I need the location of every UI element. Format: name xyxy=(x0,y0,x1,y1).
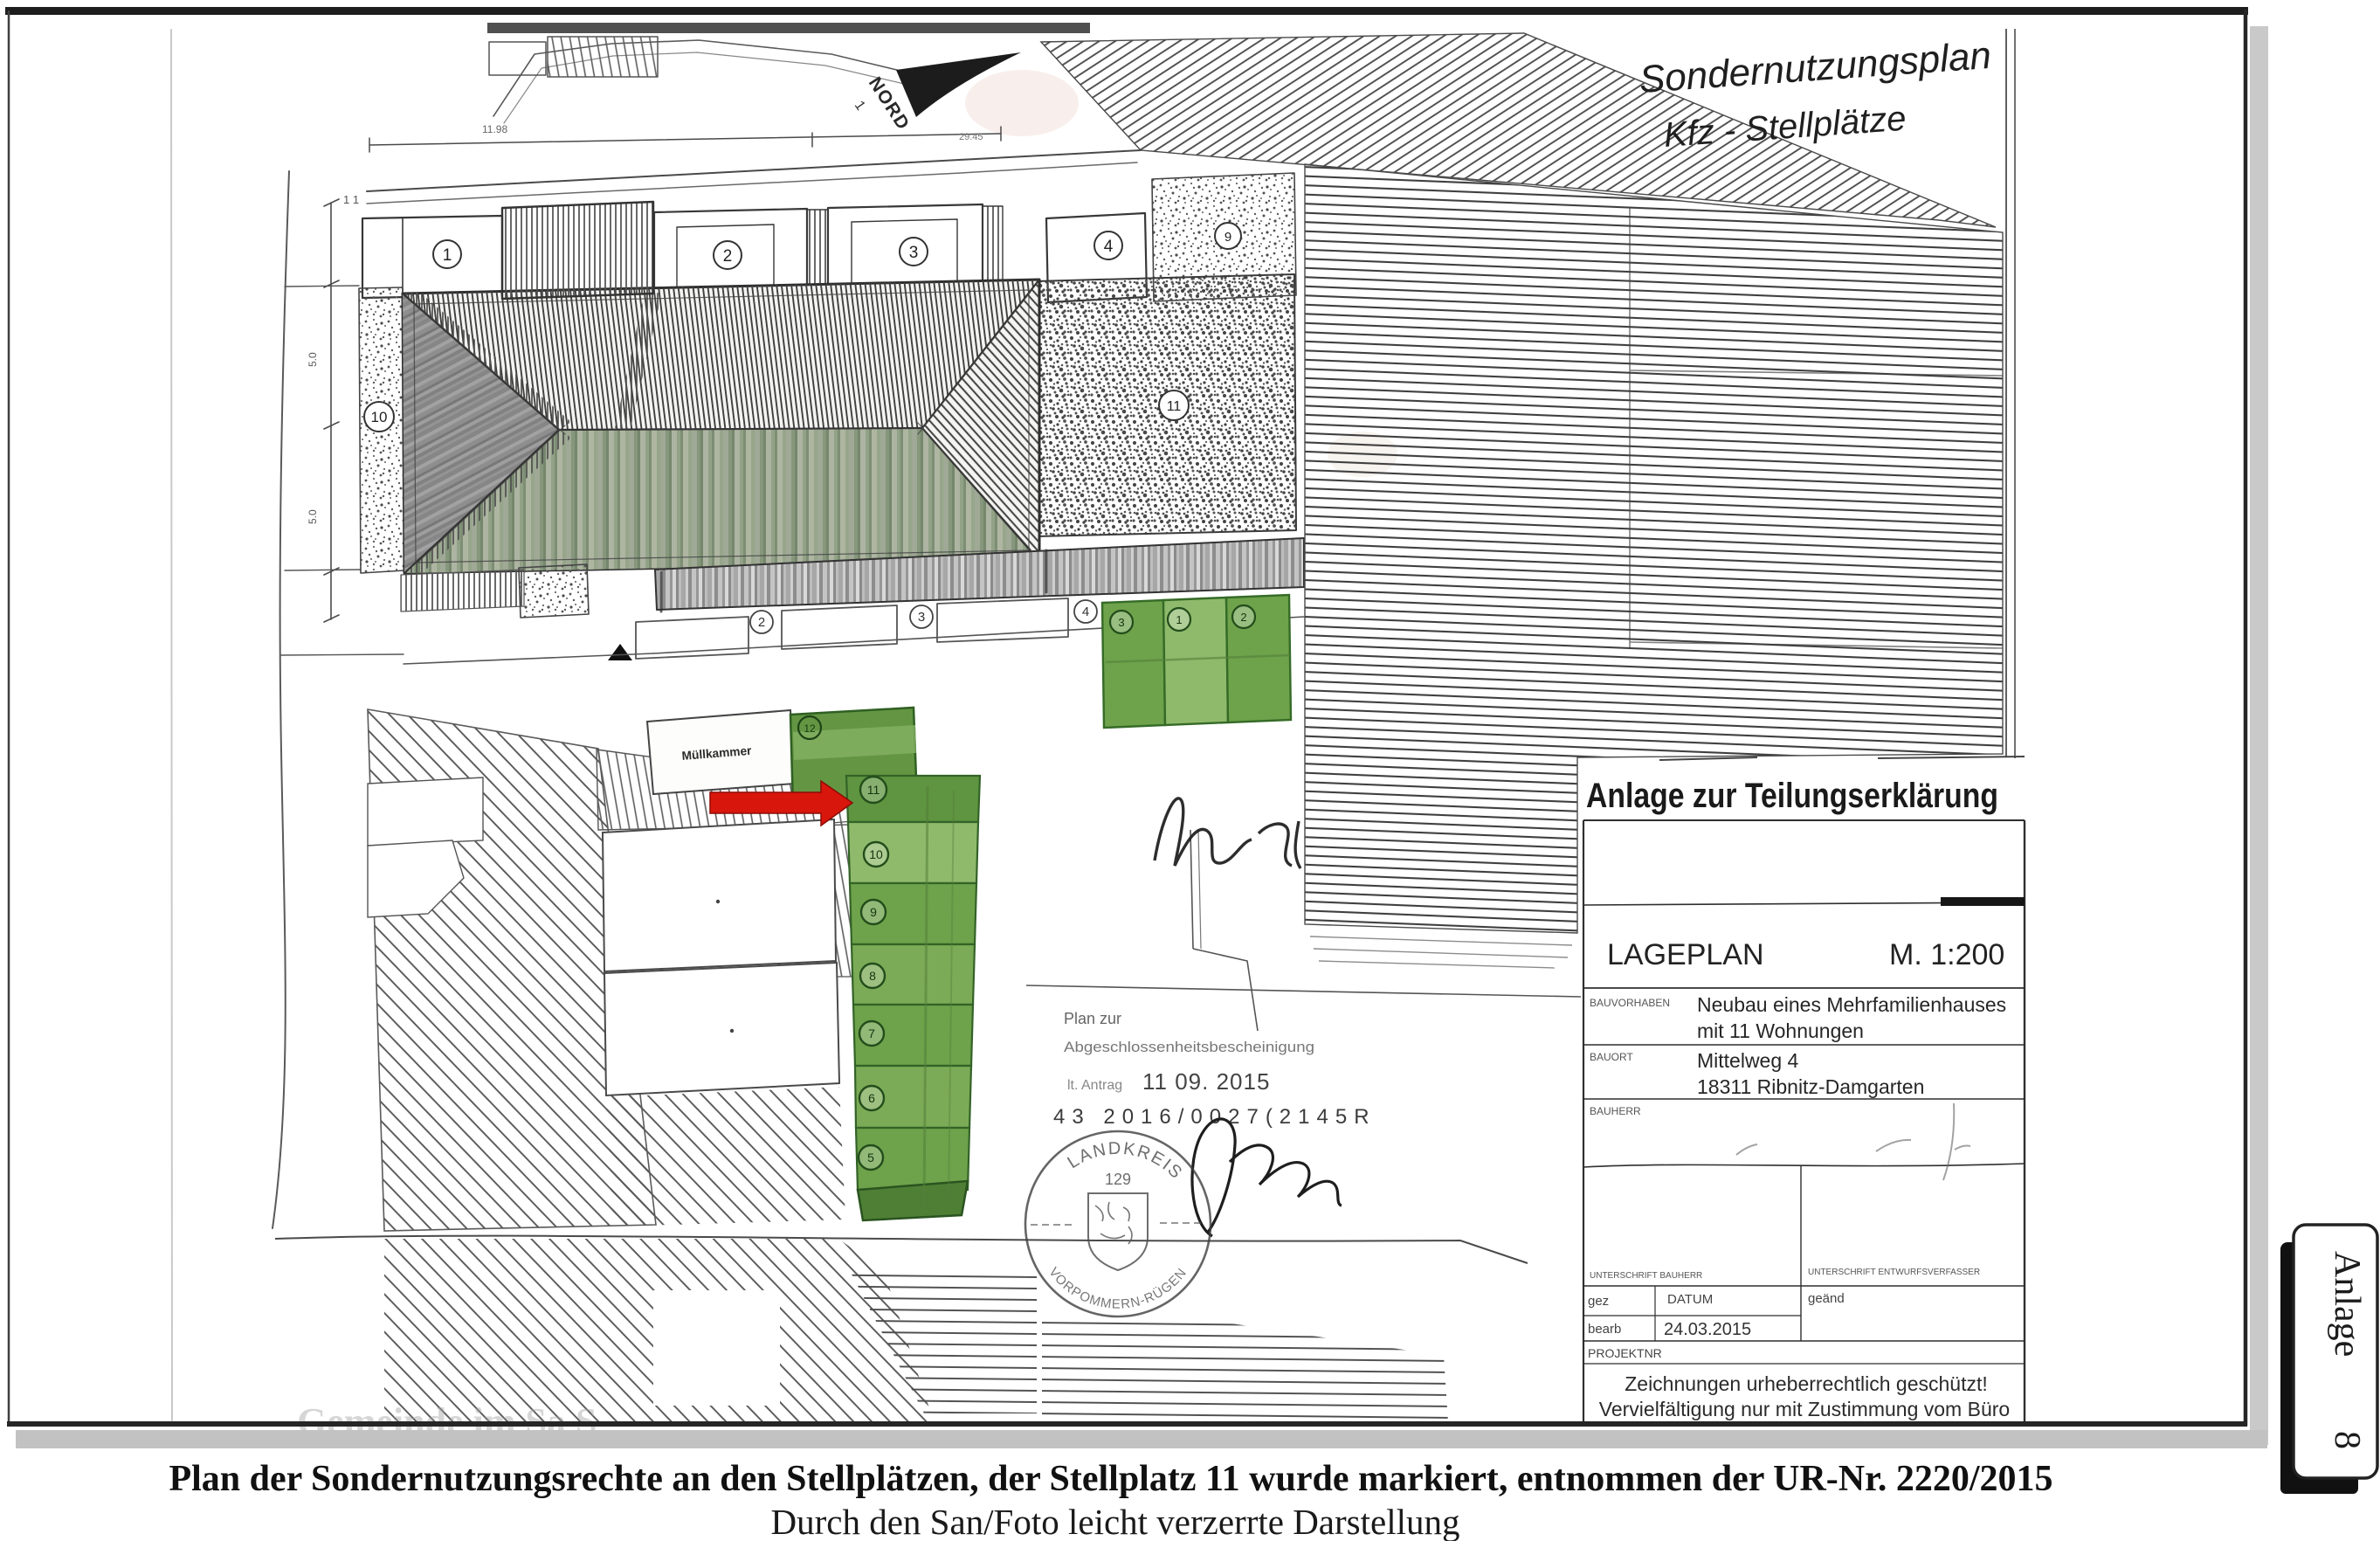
svg-text:1 1: 1 1 xyxy=(343,193,359,206)
svg-text:11: 11 xyxy=(867,783,880,797)
svg-text:29.45: 29.45 xyxy=(959,132,983,142)
svg-text:BAUHERR: BAUHERR xyxy=(1590,1105,1641,1117)
svg-text:M. 1:200: M. 1:200 xyxy=(1889,938,2004,971)
svg-text:8: 8 xyxy=(2327,1431,2367,1449)
svg-text:12: 12 xyxy=(804,722,816,735)
svg-text:10: 10 xyxy=(371,409,388,425)
svg-text:3: 3 xyxy=(909,244,919,262)
svg-text:11 09. 2015: 11 09. 2015 xyxy=(1142,1068,1270,1095)
svg-text:Plan zur: Plan zur xyxy=(1064,1010,1121,1027)
svg-text:Durch den San/Foto leicht verz: Durch den San/Foto leicht verzerrte Dars… xyxy=(771,1502,1460,1541)
svg-text:9: 9 xyxy=(870,905,877,919)
svg-text:8: 8 xyxy=(869,969,876,983)
svg-text:2: 2 xyxy=(758,615,765,630)
svg-text:Plan der Sondernutzungsrechte: Plan der Sondernutzungsrechte an den Ste… xyxy=(169,1459,2052,1499)
svg-text:geänd: geänd xyxy=(1808,1291,1845,1306)
svg-text:Vervielfältigung nur mit Zusti: Vervielfältigung nur mit Zustimmung vom … xyxy=(1599,1398,2010,1420)
svg-text:6: 6 xyxy=(868,1091,875,1105)
svg-text:gez: gez xyxy=(1588,1294,1609,1309)
svg-text:11.98: 11.98 xyxy=(482,123,507,135)
svg-text:1: 1 xyxy=(1176,613,1182,626)
svg-text:24.03.2015: 24.03.2015 xyxy=(1664,1320,1751,1339)
svg-text:Mittelweg 4: Mittelweg 4 xyxy=(1697,1049,1799,1072)
svg-text:Abgeschlossenheitsbescheinigun: Abgeschlossenheitsbescheinigung xyxy=(1064,1039,1314,1055)
svg-text:Neubau eines Mehrfamilienhause: Neubau eines Mehrfamilienhauses xyxy=(1697,993,2006,1016)
svg-text:3: 3 xyxy=(1118,616,1124,629)
svg-text:UNTERSCHRIFT ENTWURFSVERFASSER: UNTERSCHRIFT ENTWURFSVERFASSER xyxy=(1808,1268,1980,1277)
svg-text:PROJEKTNR: PROJEKTNR xyxy=(1588,1346,1662,1360)
svg-text:Anlage zur Teilungserklärung: Anlage zur Teilungserklärung xyxy=(1586,777,1998,815)
svg-text:10: 10 xyxy=(869,847,883,861)
svg-text:bearb: bearb xyxy=(1588,1322,1621,1337)
svg-text:43 2016/0027(2145R: 43 2016/0027(2145R xyxy=(1053,1105,1376,1129)
svg-text:DATUM: DATUM xyxy=(1667,1292,1713,1307)
svg-text:129: 129 xyxy=(1105,1171,1131,1188)
svg-text:4: 4 xyxy=(1082,605,1089,619)
svg-text:5.0: 5.0 xyxy=(307,352,319,367)
svg-text:mit 11 Wohnungen: mit 11 Wohnungen xyxy=(1697,1019,1864,1042)
svg-text:LAGEPLAN: LAGEPLAN xyxy=(1607,938,1764,971)
svg-text:lt. Antrag: lt. Antrag xyxy=(1067,1078,1122,1093)
svg-text:BAUVORHABEN: BAUVORHABEN xyxy=(1590,997,1670,1009)
svg-text:3: 3 xyxy=(918,610,925,625)
svg-text:4: 4 xyxy=(1104,238,1114,256)
svg-text:7: 7 xyxy=(868,1026,875,1040)
svg-text:Anlage: Anlage xyxy=(2327,1251,2367,1357)
svg-text:2: 2 xyxy=(723,247,733,266)
svg-text:BAUORT: BAUORT xyxy=(1590,1051,1633,1063)
svg-text:9: 9 xyxy=(1224,230,1231,245)
svg-text:5.0: 5.0 xyxy=(307,509,319,524)
svg-text:11: 11 xyxy=(1167,399,1182,414)
svg-text:5: 5 xyxy=(867,1151,874,1164)
svg-text:18311 Ribnitz-Damgarten: 18311 Ribnitz-Damgarten xyxy=(1697,1075,1924,1098)
svg-text:Zeichnungen urheberrechtlich g: Zeichnungen urheberrechtlich geschützt! xyxy=(1625,1372,1988,1395)
svg-text:1: 1 xyxy=(443,246,452,265)
svg-text:2: 2 xyxy=(1240,611,1246,624)
svg-text:UNTERSCHRIFT BAUHERR: UNTERSCHRIFT BAUHERR xyxy=(1590,1271,1702,1281)
